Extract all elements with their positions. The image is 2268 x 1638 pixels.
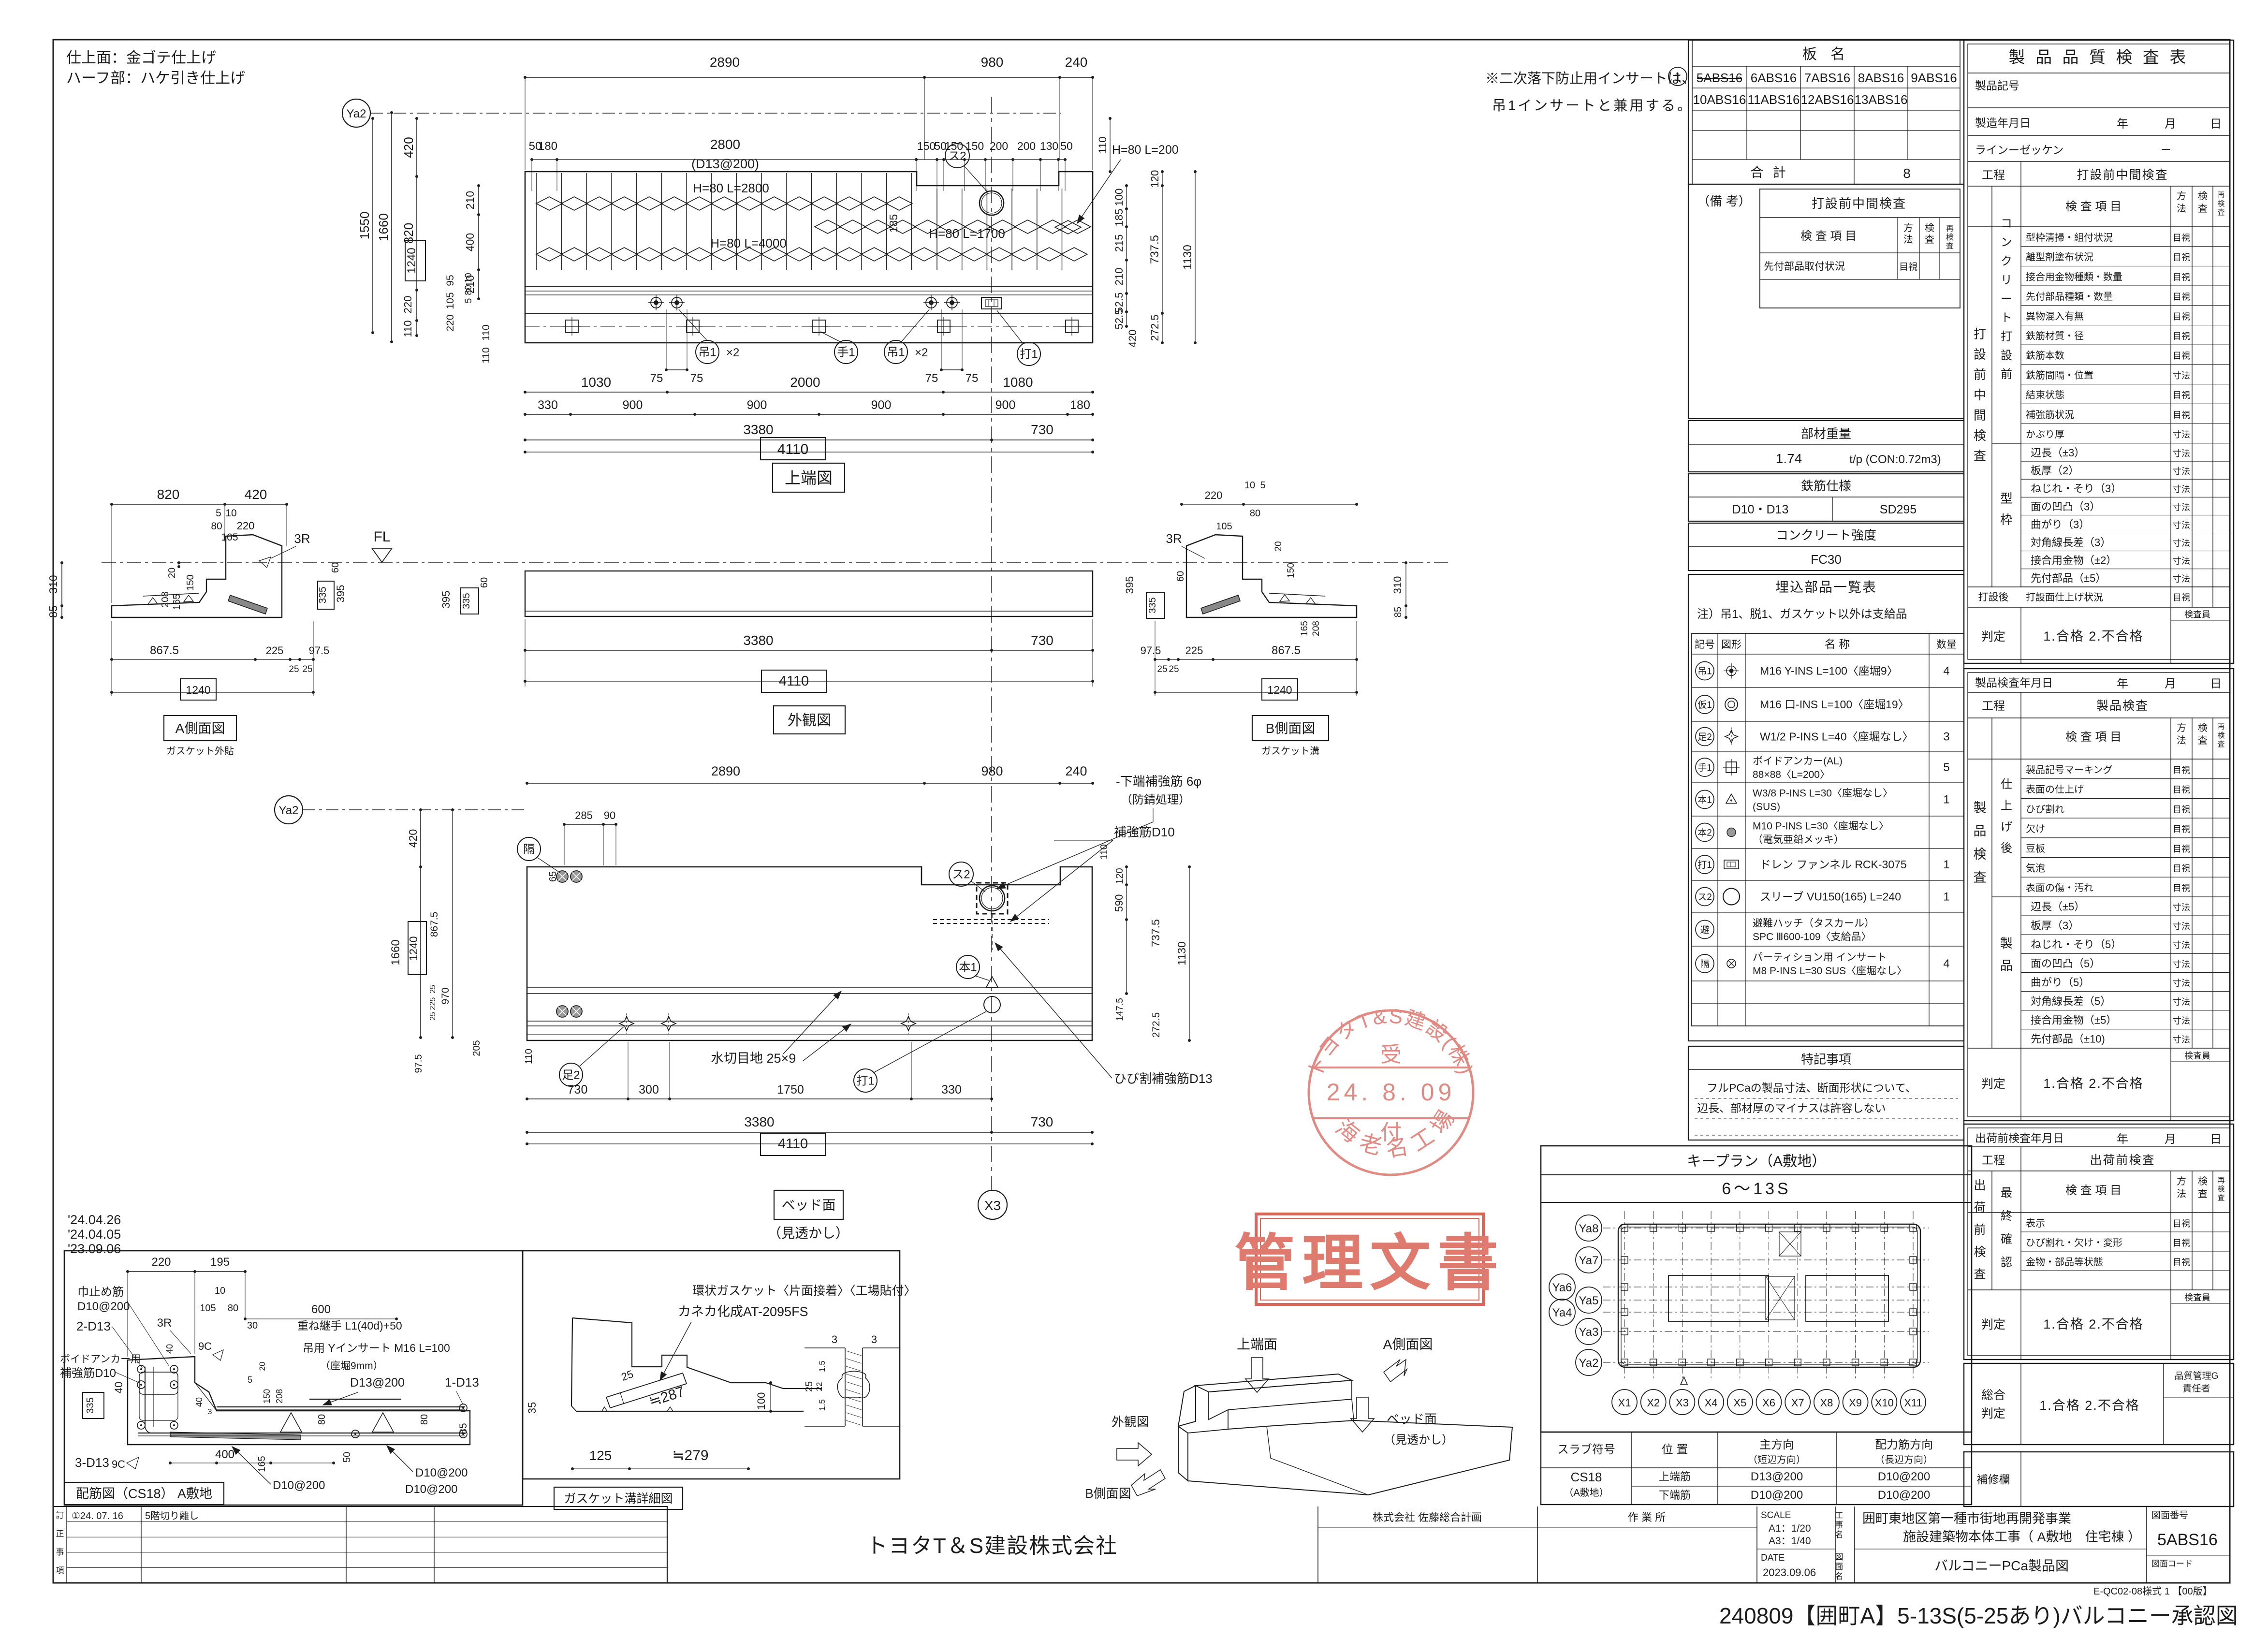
- svg-text:3-D13: 3-D13: [75, 1455, 109, 1470]
- svg-text:40: 40: [194, 1397, 204, 1407]
- svg-text:120: 120: [1149, 170, 1161, 188]
- svg-text:X4: X4: [1705, 1397, 1718, 1409]
- svg-text:検 査 項 目: 検 査 項 目: [2065, 1184, 2122, 1197]
- svg-text:W3/8 P-INS L=30〈座堀なし〉: W3/8 P-INS L=30〈座堀なし〉: [1753, 788, 1893, 799]
- svg-text:980: 980: [981, 55, 1004, 70]
- svg-text:総合: 総合: [1981, 1389, 2005, 1402]
- svg-text:D10@200: D10@200: [1878, 1470, 1930, 1483]
- svg-text:DATE: DATE: [1761, 1553, 1785, 1563]
- svg-text:配力筋方向: 配力筋方向: [1875, 1438, 1933, 1451]
- svg-text:X9: X9: [1849, 1397, 1862, 1409]
- svg-text:寸法: 寸法: [2173, 467, 2190, 476]
- svg-text:前: 前: [1974, 367, 1986, 382]
- svg-text:1.5: 1.5: [818, 1399, 827, 1411]
- svg-text:147.5: 147.5: [1115, 998, 1125, 1021]
- svg-text:1130: 1130: [1181, 245, 1194, 270]
- svg-text:日: 日: [2210, 117, 2222, 131]
- svg-text:Ya4: Ya4: [1552, 1306, 1572, 1319]
- svg-text:月: 月: [2165, 1133, 2176, 1146]
- svg-text:220: 220: [445, 314, 456, 331]
- svg-text:手1: 手1: [837, 346, 855, 359]
- svg-text:特記事項: 特記事項: [1801, 1052, 1851, 1067]
- svg-text:品: 品: [1974, 824, 1987, 838]
- svg-text:1: 1: [1943, 891, 1949, 904]
- svg-text:表面の傷・汚れ: 表面の傷・汚れ: [2026, 882, 2093, 893]
- svg-text:正: 正: [56, 1529, 64, 1538]
- svg-text:設: 設: [2001, 349, 2012, 362]
- svg-text:1030: 1030: [581, 375, 611, 390]
- svg-text:打1: 打1: [856, 1074, 874, 1087]
- svg-text:合 計: 合 計: [1750, 165, 1789, 180]
- svg-text:10: 10: [225, 508, 236, 519]
- svg-text:型: 型: [2000, 491, 2013, 506]
- svg-text:65: 65: [548, 871, 558, 882]
- svg-text:接合用金物種類・数量: 接合用金物種類・数量: [2026, 271, 2122, 282]
- svg-text:867.5: 867.5: [1272, 644, 1301, 657]
- svg-text:330: 330: [941, 1083, 962, 1097]
- svg-text:避難ハッチ（タスカール）: 避難ハッチ（タスカール）: [1753, 918, 1874, 929]
- svg-text:2023.09.06: 2023.09.06: [1763, 1566, 1816, 1579]
- svg-text:110: 110: [481, 347, 492, 363]
- svg-text:240809【囲町A】5-13S(5-25あり)バルコニー承: 240809【囲町A】5-13S(5-25あり)バルコニー承認図: [1719, 1603, 2238, 1628]
- svg-text:検 査 項 目: 検 査 項 目: [2065, 200, 2122, 213]
- svg-text:寸法: 寸法: [2173, 959, 2190, 969]
- svg-text:215: 215: [1113, 234, 1125, 252]
- svg-text:寸法: 寸法: [2173, 1016, 2190, 1026]
- svg-text:目視: 目視: [2173, 1219, 2190, 1228]
- svg-text:打1: 打1: [1697, 860, 1712, 870]
- svg-text:製: 製: [1974, 801, 1987, 815]
- svg-text:3: 3: [208, 1408, 212, 1416]
- svg-text:（短辺方向）: （短辺方向）: [1748, 1454, 1806, 1465]
- svg-text:打設前中間検査: 打設前中間検査: [1812, 196, 1906, 211]
- svg-text:20: 20: [1273, 541, 1284, 551]
- svg-text:3: 3: [1943, 731, 1949, 744]
- svg-text:間: 間: [1974, 408, 1986, 423]
- svg-text:本1: 本1: [1697, 795, 1712, 805]
- svg-text:査: 査: [2217, 740, 2224, 748]
- svg-text:Ya2: Ya2: [347, 107, 366, 120]
- svg-text:方: 方: [2177, 1176, 2186, 1187]
- svg-text:ひび割補強筋D13: ひび割補強筋D13: [1114, 1071, 1213, 1086]
- svg-text:W1/2 P-INS L=40〈座堀なし〉: W1/2 P-INS L=40〈座堀なし〉: [1760, 731, 1914, 743]
- svg-text:13ABS16: 13ABS16: [1855, 92, 1908, 107]
- svg-text:M16 Y-INS L=100〈座堀9〉: M16 Y-INS L=100〈座堀9〉: [1760, 665, 1898, 677]
- svg-text:目視: 目視: [2173, 864, 2190, 874]
- svg-text:再: 再: [2217, 191, 2224, 199]
- svg-text:D10@200: D10@200: [1878, 1489, 1930, 1502]
- svg-text:査: 査: [2217, 1194, 2224, 1202]
- svg-text:310: 310: [47, 575, 59, 593]
- svg-text:製: 製: [2000, 936, 2013, 951]
- svg-text:品: 品: [2000, 958, 2013, 973]
- svg-text:再: 再: [2217, 723, 2224, 731]
- svg-text:ン: ン: [2001, 236, 2012, 249]
- svg-text:工程: 工程: [1982, 1154, 2005, 1167]
- svg-text:165: 165: [1300, 621, 1310, 636]
- svg-text:10: 10: [464, 273, 474, 283]
- svg-text:査: 査: [2217, 208, 2224, 217]
- svg-text:165: 165: [257, 1456, 267, 1472]
- svg-text:査: 査: [2198, 735, 2208, 746]
- svg-text:335: 335: [85, 1397, 96, 1413]
- svg-text:85: 85: [1393, 607, 1404, 617]
- svg-text:X7: X7: [1791, 1397, 1804, 1409]
- svg-text:A1：1/20: A1：1/20: [1769, 1523, 1811, 1534]
- svg-text:Ya6: Ya6: [1552, 1281, 1572, 1294]
- svg-text:寸法: 寸法: [2173, 921, 2190, 931]
- svg-text:ひび割れ: ひび割れ: [2026, 804, 2064, 815]
- svg-text:Ya8: Ya8: [1579, 1222, 1599, 1235]
- svg-text:隔: 隔: [1700, 959, 1709, 969]
- svg-text:CS18: CS18: [1570, 1470, 1602, 1484]
- svg-text:検: 検: [2217, 1185, 2224, 1193]
- svg-text:寸法: 寸法: [2173, 520, 2190, 530]
- svg-text:220: 220: [1205, 489, 1223, 501]
- svg-text:辺長（±3）: 辺長（±3）: [2031, 447, 2085, 459]
- svg-text:208: 208: [1311, 621, 1321, 636]
- svg-text:25: 25: [429, 985, 437, 994]
- svg-text:195: 195: [210, 1256, 230, 1269]
- svg-text:日: 日: [2210, 1133, 2222, 1146]
- svg-text:判定: 判定: [1981, 1318, 2005, 1331]
- svg-text:ー: ー: [2001, 292, 2012, 306]
- svg-text:金物・部品等状態: 金物・部品等状態: [2026, 1257, 2103, 1268]
- svg-text:項: 項: [56, 1566, 64, 1575]
- svg-text:－: －: [2160, 144, 2172, 157]
- svg-text:85: 85: [458, 1423, 469, 1434]
- svg-text:8ABS16: 8ABS16: [1858, 71, 1904, 85]
- svg-text:5: 5: [248, 1375, 252, 1385]
- svg-text:D10@200: D10@200: [77, 1300, 130, 1313]
- svg-text:80: 80: [419, 1414, 430, 1425]
- svg-text:異物混入有無: 異物混入有無: [2026, 311, 2084, 322]
- svg-text:鉄筋材質・径: 鉄筋材質・径: [2026, 331, 2084, 342]
- svg-text:かぶり厚: かぶり厚: [2026, 429, 2064, 440]
- svg-text:730: 730: [1031, 633, 1054, 648]
- svg-text:130: 130: [1040, 140, 1058, 152]
- svg-text:11ABS16: 11ABS16: [1748, 92, 1800, 107]
- svg-text:105: 105: [1216, 521, 1232, 532]
- svg-text:管理文書: 管理文書: [1234, 1229, 1505, 1297]
- svg-text:ベッド面: ベッド面: [1387, 1412, 1437, 1426]
- svg-text:867.5: 867.5: [429, 912, 440, 937]
- svg-text:H=80 L=2800: H=80 L=2800: [693, 181, 769, 195]
- svg-text:110: 110: [524, 1049, 534, 1064]
- svg-text:X3: X3: [984, 1198, 1001, 1213]
- svg-text:5: 5: [464, 298, 474, 304]
- svg-text:ガスケット溝詳細図: ガスケット溝詳細図: [564, 1492, 673, 1506]
- svg-text:225: 225: [1185, 644, 1203, 657]
- svg-text:10ABS16: 10ABS16: [1693, 92, 1746, 107]
- svg-text:ベッド面: ベッド面: [781, 1198, 835, 1213]
- svg-text:査: 査: [1946, 242, 1954, 250]
- svg-text:目視: 目視: [2173, 272, 2190, 282]
- svg-text:400: 400: [464, 233, 476, 251]
- svg-text:M8 P-INS L=30 SUS〈座堀なし〉: M8 P-INS L=30 SUS〈座堀なし〉: [1753, 965, 1907, 977]
- svg-text:上: 上: [2001, 799, 2012, 812]
- svg-text:目視: 目視: [2173, 1238, 2190, 1248]
- svg-text:隔: 隔: [523, 843, 535, 856]
- svg-text:180: 180: [538, 140, 557, 153]
- svg-text:100: 100: [1113, 189, 1125, 206]
- svg-text:出: 出: [1974, 1179, 1986, 1192]
- svg-text:6～13S: 6～13S: [1722, 1180, 1791, 1198]
- svg-text:1.合格 2.不合格: 1.合格 2.不合格: [2039, 1398, 2140, 1413]
- svg-text:配筋図（CS18） A敷地: 配筋図（CS18） A敷地: [76, 1487, 212, 1501]
- svg-text:2-D13: 2-D13: [76, 1319, 111, 1333]
- svg-text:100: 100: [755, 1392, 767, 1410]
- svg-text:付: 付: [1380, 1121, 1402, 1144]
- svg-text:検 査 項 目: 検 査 項 目: [2065, 731, 2122, 744]
- svg-text:110: 110: [402, 320, 414, 337]
- svg-text:4: 4: [1943, 957, 1949, 970]
- svg-text:豆板: 豆板: [2026, 843, 2045, 854]
- svg-text:1.合格 2.不合格: 1.合格 2.不合格: [2043, 1317, 2144, 1331]
- svg-text:目視: 目視: [2173, 233, 2190, 243]
- svg-text:目視: 目視: [2173, 351, 2190, 361]
- svg-text:査: 査: [1974, 449, 1986, 463]
- svg-text:90: 90: [604, 809, 615, 821]
- svg-text:吊用 Yインサート M16 L=100: 吊用 Yインサート M16 L=100: [303, 1342, 450, 1354]
- svg-text:3R: 3R: [294, 531, 310, 546]
- svg-text:1240: 1240: [407, 936, 420, 961]
- svg-text:認: 認: [2001, 1256, 2012, 1269]
- svg-text:埋込部品一覧表: 埋込部品一覧表: [1775, 580, 1877, 595]
- svg-text:50: 50: [1060, 140, 1073, 152]
- svg-text:上端図: 上端図: [785, 469, 833, 487]
- svg-text:220: 220: [402, 296, 414, 314]
- svg-text:310: 310: [1391, 576, 1404, 594]
- svg-text:4110: 4110: [777, 441, 809, 457]
- svg-text:表示: 表示: [2026, 1218, 2045, 1229]
- svg-text:辺長（±5）: 辺長（±5）: [2031, 901, 2085, 913]
- svg-text:97.5: 97.5: [413, 1054, 424, 1073]
- svg-text:22: 22: [815, 1382, 824, 1391]
- svg-text:責任者: 責任者: [2182, 1383, 2210, 1394]
- svg-text:8: 8: [1903, 166, 1911, 181]
- svg-text:（見透かし）: （見透かし）: [1384, 1433, 1453, 1447]
- svg-text:上端面: 上端面: [1237, 1337, 1277, 1352]
- svg-text:D13@200: D13@200: [1751, 1470, 1803, 1483]
- svg-text:'24.04.05: '24.04.05: [68, 1227, 121, 1242]
- svg-text:150: 150: [1286, 563, 1296, 578]
- svg-text:判定: 判定: [1981, 1077, 2005, 1091]
- svg-text:35: 35: [526, 1402, 538, 1414]
- svg-text:中: 中: [1974, 388, 1986, 402]
- svg-text:80: 80: [228, 1303, 238, 1314]
- svg-text:210: 210: [1113, 268, 1125, 286]
- svg-text:110: 110: [1099, 844, 1110, 860]
- svg-text:1: 1: [1943, 858, 1949, 871]
- svg-text:後: 後: [2001, 842, 2012, 855]
- svg-text:打: 打: [2001, 330, 2012, 343]
- svg-text:X5: X5: [1733, 1397, 1746, 1409]
- svg-text:（長辺方向）: （長辺方向）: [1875, 1454, 1933, 1465]
- svg-text:手1: 手1: [1697, 762, 1712, 773]
- svg-text:FL: FL: [373, 529, 390, 545]
- svg-text:検: 検: [1946, 233, 1954, 242]
- svg-text:40: 40: [113, 1382, 125, 1393]
- svg-text:判定: 判定: [1981, 1407, 2005, 1420]
- svg-text:接合用金物（±5）: 接合用金物（±5）: [2031, 1014, 2117, 1026]
- svg-text:主方向: 主方向: [1759, 1438, 1794, 1451]
- svg-text:25: 25: [289, 664, 299, 674]
- svg-text:離型剤塗布状況: 離型剤塗布状況: [2026, 252, 2093, 263]
- svg-text:50: 50: [342, 1452, 352, 1462]
- svg-text:2890: 2890: [711, 764, 740, 778]
- svg-text:105: 105: [221, 532, 238, 543]
- svg-text:目視: 目視: [2173, 391, 2190, 400]
- svg-text:方: 方: [2177, 190, 2186, 202]
- svg-text:225: 225: [429, 997, 437, 1010]
- svg-text:ボイドアンカー(AL): ボイドアンカー(AL): [1753, 756, 1843, 767]
- svg-text:95: 95: [445, 275, 456, 286]
- svg-text:1: 1: [1943, 793, 1949, 806]
- svg-text:SPC Ⅲ600-109〈支給品〉: SPC Ⅲ600-109〈支給品〉: [1753, 932, 1872, 943]
- svg-text:ス2: ス2: [952, 868, 970, 881]
- svg-text:220: 220: [151, 1256, 171, 1269]
- svg-text:①24. 07. 16: ①24. 07. 16: [72, 1511, 123, 1521]
- svg-text:注）吊1、脱1、ガスケット以外は支給品: 注）吊1、脱1、ガスケット以外は支給品: [1697, 608, 1907, 621]
- svg-text:105: 105: [200, 1303, 216, 1314]
- svg-text:年: 年: [2117, 677, 2128, 690]
- svg-text:ス2: ス2: [948, 149, 966, 162]
- svg-text:900: 900: [871, 398, 892, 412]
- svg-text:結束状態: 結束状態: [2026, 390, 2064, 401]
- svg-text:（A敷地）: （A敷地）: [1564, 1487, 1609, 1498]
- svg-text:目視: 目視: [2173, 332, 2190, 341]
- svg-text:H=80 L=200: H=80 L=200: [1112, 143, 1179, 157]
- svg-text:補強筋D10: 補強筋D10: [60, 1367, 116, 1380]
- svg-text:法: 法: [2177, 203, 2186, 214]
- svg-text:検: 検: [1974, 428, 1986, 443]
- svg-text:欠け: 欠け: [2026, 823, 2045, 834]
- svg-text:検: 検: [1974, 1245, 1986, 1259]
- svg-text:検査員: 検査員: [2184, 1293, 2210, 1302]
- svg-text:80: 80: [211, 521, 222, 532]
- svg-text:H=80 L=4000: H=80 L=4000: [710, 236, 787, 250]
- svg-text:Ya2: Ya2: [279, 804, 299, 817]
- svg-text:150: 150: [185, 574, 196, 590]
- svg-text:本1: 本1: [959, 961, 977, 974]
- svg-text:737.5: 737.5: [1148, 235, 1161, 264]
- svg-text:寸法: 寸法: [2173, 997, 2190, 1007]
- svg-text:208: 208: [160, 591, 171, 607]
- svg-text:730: 730: [1031, 1114, 1054, 1129]
- svg-text:足2: 足2: [1697, 732, 1712, 743]
- svg-text:目視: 目視: [2173, 883, 2190, 893]
- svg-text:確: 確: [2001, 1233, 2012, 1246]
- svg-text:200: 200: [990, 140, 1008, 152]
- svg-text:フルPCaの製品寸法、断面形状について、: フルPCaの製品寸法、断面形状について、: [1707, 1082, 1917, 1094]
- svg-text:鉄筋本数: 鉄筋本数: [2026, 350, 2064, 361]
- svg-text:M10 P-INS L=30〈座堀なし〉: M10 P-INS L=30〈座堀なし〉: [1753, 821, 1889, 832]
- svg-text:420: 420: [1127, 330, 1139, 348]
- svg-text:1: 1: [1674, 71, 1681, 84]
- svg-text:訂: 訂: [56, 1511, 64, 1520]
- svg-text:X10: X10: [1875, 1397, 1894, 1409]
- svg-text:1.合格 2.不合格: 1.合格 2.不合格: [2043, 1076, 2144, 1091]
- svg-text:900: 900: [623, 398, 643, 412]
- svg-text:方: 方: [2177, 722, 2186, 733]
- svg-text:（座堀9mm）: （座堀9mm）: [320, 1360, 383, 1372]
- svg-text:目視: 目視: [1899, 262, 1917, 272]
- svg-text:寸法: 寸法: [2173, 430, 2190, 439]
- svg-text:先付部品取付状況: 先付部品取付状況: [1764, 261, 1845, 272]
- svg-text:補修欄: 補修欄: [1977, 1473, 2010, 1486]
- svg-text:9C: 9C: [112, 1458, 125, 1470]
- svg-text:1240: 1240: [1267, 684, 1292, 696]
- svg-text:（防錆処理）: （防錆処理）: [1121, 793, 1190, 806]
- svg-text:225: 225: [266, 644, 284, 657]
- svg-text:60: 60: [479, 577, 490, 588]
- svg-text:210: 210: [464, 191, 476, 209]
- svg-text:寸法: 寸法: [2173, 371, 2190, 380]
- svg-text:水切目地 25×9: 水切目地 25×9: [711, 1051, 796, 1066]
- svg-text:3: 3: [871, 1333, 877, 1345]
- svg-text:査: 査: [2198, 1188, 2208, 1199]
- svg-text:9ABS16: 9ABS16: [1911, 71, 1957, 85]
- svg-text:打設前中間検査: 打設前中間検査: [2077, 168, 2168, 182]
- svg-text:製造年月日: 製造年月日: [1975, 117, 2031, 129]
- svg-text:出荷前検査: 出荷前検査: [2090, 1154, 2155, 1167]
- svg-text:枠: 枠: [2000, 512, 2013, 527]
- svg-text:先付部品（±10): 先付部品（±10): [2031, 1033, 2105, 1045]
- svg-text:足2: 足2: [562, 1068, 580, 1082]
- svg-text:作 業 所: 作 業 所: [1628, 1511, 1666, 1523]
- svg-text:5: 5: [216, 508, 221, 519]
- svg-text:（電気亜鉛メッキ）: （電気亜鉛メッキ）: [1753, 834, 1844, 846]
- svg-text:12ABS16: 12ABS16: [1801, 92, 1854, 107]
- svg-text:寸法: 寸法: [2173, 940, 2190, 950]
- svg-text:2800: 2800: [710, 137, 740, 152]
- svg-text:2890: 2890: [710, 55, 740, 70]
- svg-text:D10・D13: D10・D13: [1732, 503, 1789, 516]
- svg-text:判定: 判定: [1981, 630, 2005, 643]
- svg-text:株式会社 佐藤総合計画: 株式会社 佐藤総合計画: [1373, 1511, 1482, 1523]
- svg-text:打1: 打1: [1020, 348, 1038, 361]
- svg-text:H=80 L=1700: H=80 L=1700: [929, 226, 1005, 241]
- svg-text:検査員: 検査員: [2184, 1051, 2210, 1061]
- svg-text:図形: 図形: [1721, 639, 1741, 650]
- svg-text:目視: 目視: [2173, 593, 2190, 602]
- svg-text:200: 200: [1017, 140, 1036, 152]
- svg-text:395: 395: [1124, 576, 1136, 594]
- svg-text:4110: 4110: [779, 673, 809, 689]
- svg-text:5ABS16: 5ABS16: [2157, 1531, 2218, 1549]
- svg-text:出荷前検査年月日: 出荷前検査年月日: [1975, 1132, 2064, 1144]
- svg-text:板厚（2）: 板厚（2）: [2031, 465, 2079, 477]
- svg-text:ガスケット溝: ガスケット溝: [1261, 746, 1319, 757]
- svg-text:最: 最: [2001, 1186, 2012, 1199]
- svg-text:75: 75: [925, 372, 938, 385]
- svg-text:製品検査: 製品検査: [2096, 699, 2149, 713]
- svg-text:コンクリート強度: コンクリート強度: [1776, 528, 1876, 542]
- svg-text:工程: 工程: [1982, 169, 2005, 182]
- svg-text:40: 40: [165, 1344, 175, 1354]
- svg-text:ドレン ファンネル RCK-3075: ドレン ファンネル RCK-3075: [1760, 858, 1907, 871]
- svg-text:ねじれ・そり（3）: ねじれ・そり（3）: [2031, 483, 2122, 495]
- svg-text:-下端補強筋 6φ: -下端補強筋 6φ: [1116, 774, 1201, 789]
- svg-text:法: 法: [1903, 234, 1913, 245]
- svg-text:年: 年: [2117, 117, 2128, 131]
- svg-text:面: 面: [1835, 1562, 1844, 1571]
- svg-text:型枠清掃・組付状況: 型枠清掃・組付状況: [2026, 232, 2113, 243]
- svg-text:185: 185: [1113, 209, 1125, 227]
- svg-text:150: 150: [262, 1389, 272, 1404]
- svg-text:272.5: 272.5: [1151, 1012, 1162, 1038]
